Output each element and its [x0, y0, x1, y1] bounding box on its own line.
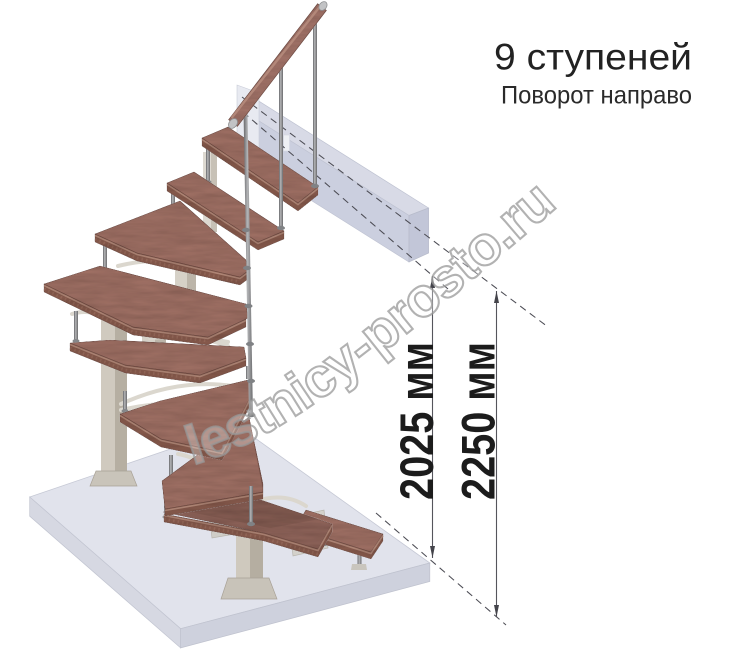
- svg-text:2250 мм: 2250 мм: [453, 342, 506, 500]
- svg-text:2025 мм: 2025 мм: [391, 342, 444, 500]
- svg-text:9 ступеней: 9 ступеней: [494, 37, 692, 78]
- svg-text:Поворот направо: Поворот направо: [501, 82, 692, 110]
